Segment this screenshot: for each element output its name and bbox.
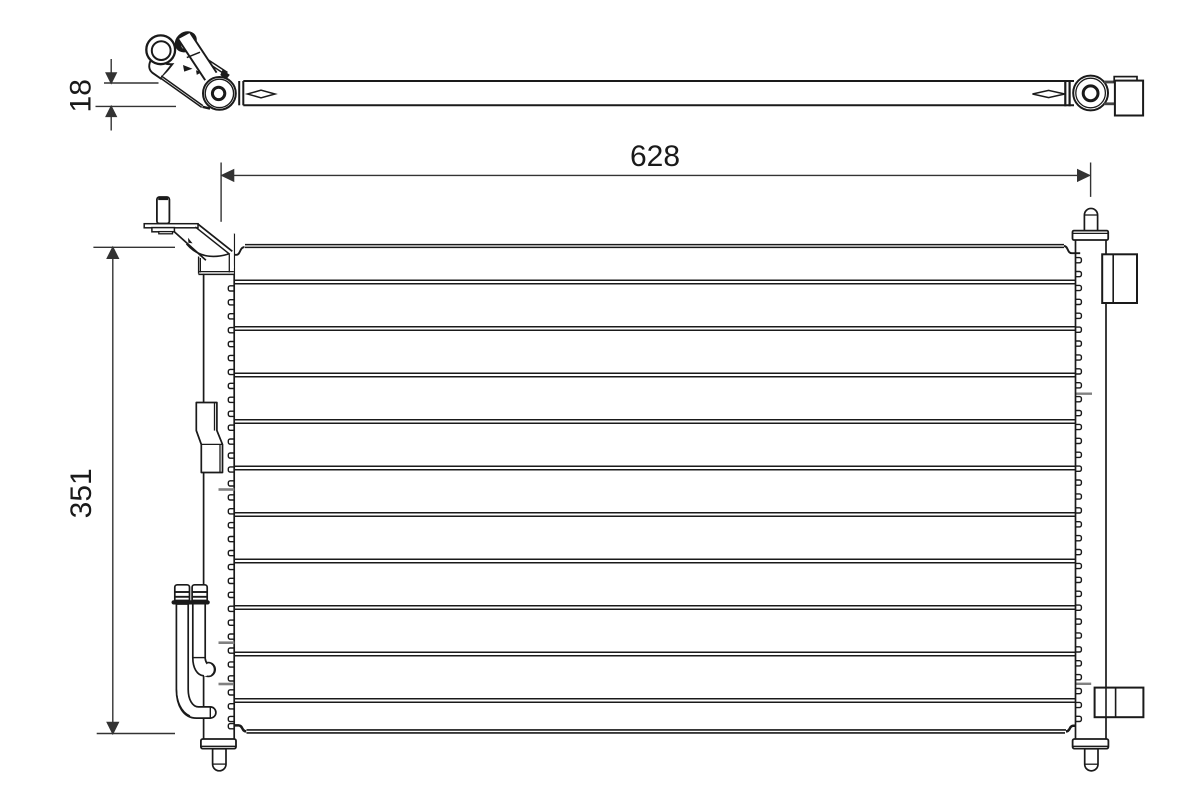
svg-text:351: 351: [65, 468, 98, 518]
svg-text:628: 628: [630, 140, 680, 173]
svg-text:18: 18: [64, 79, 97, 112]
